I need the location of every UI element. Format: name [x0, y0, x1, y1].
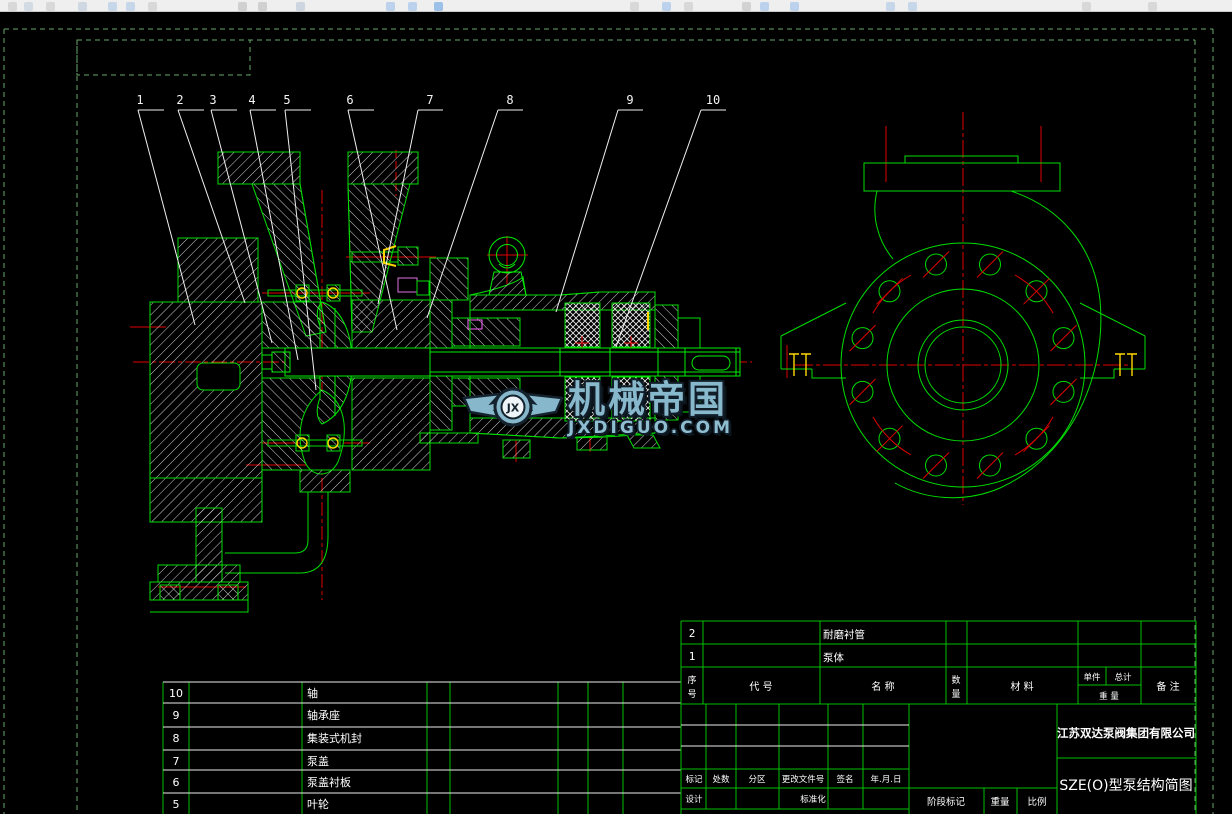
callout-label: 5 [283, 93, 290, 107]
item-name: 泵体 [823, 652, 844, 664]
part-name: 轴 [307, 686, 318, 700]
toolbar-icon[interactable] [742, 2, 751, 11]
parts-list-table: 10 9 8 7 6 5 轴 轴承座 集装式机封 泵盖 泵盖衬板 叶轮 [163, 682, 681, 814]
title-block: 2 耐磨衬管 1 泵体 序 号 代 号 名 称 数 量 材 料 单件 总计 重 … [681, 621, 1196, 814]
rev-col: 处数 [712, 774, 730, 785]
col-header-qty: 数 [951, 674, 960, 686]
part-no: 8 [173, 732, 180, 745]
item-name: 耐磨衬管 [823, 628, 865, 641]
part-no: 9 [173, 709, 180, 722]
toolbar-icon[interactable] [790, 2, 799, 11]
toolbar-icon[interactable] [1148, 2, 1157, 11]
callout-label: 3 [209, 93, 216, 107]
item-no: 2 [689, 627, 696, 640]
pump-end-view [781, 112, 1145, 505]
toolbar-icon[interactable] [24, 2, 33, 11]
part-name: 泵盖 [307, 754, 329, 768]
logo-monogram: JX [506, 402, 520, 415]
stage-mark-label: 阶段标记 [927, 796, 966, 808]
toolbar-icon[interactable] [258, 2, 267, 11]
watermark: JX 机械帝国 JXDIGUO.COM [462, 372, 772, 446]
standardization-label: 标准化 [800, 794, 826, 805]
callout-label: 4 [248, 93, 255, 107]
volute-spiral [895, 191, 1101, 498]
part-name: 泵盖衬板 [307, 775, 351, 789]
item-no: 1 [689, 650, 696, 663]
callout-label: 1 [136, 93, 143, 107]
rev-col: 签名 [836, 774, 853, 785]
col-header-unit: 单件 [1083, 672, 1101, 683]
col-header-qty: 量 [951, 689, 960, 700]
toolbar-icon[interactable] [408, 2, 417, 11]
part-name: 轴承座 [307, 708, 340, 722]
toolbar-icon[interactable] [46, 2, 55, 11]
toolbar-icon[interactable] [108, 2, 117, 11]
part-no: 10 [169, 687, 183, 700]
col-header-weight: 重 量 [1099, 691, 1119, 702]
cad-window: 1 2 3 4 5 6 7 8 9 10 [0, 0, 1232, 814]
toolbar-icon[interactable] [662, 2, 671, 11]
rev-col: 标记 [685, 774, 703, 785]
toolbar-icon[interactable] [78, 2, 87, 11]
toolbar-icon[interactable] [886, 2, 895, 11]
toolbar-icon[interactable] [8, 2, 17, 11]
toolbar-icon[interactable] [434, 2, 443, 11]
watermark-url: JXDIGUO.COM [568, 420, 733, 437]
part-name: 集装式机封 [307, 731, 362, 745]
winged-gear-logo: JX [462, 374, 564, 444]
callout-label: 6 [346, 93, 353, 107]
toolbar-icon[interactable] [386, 2, 395, 11]
toolbar-icon[interactable] [630, 2, 639, 11]
impeller-nut [272, 352, 290, 372]
toolbar-icon[interactable] [908, 2, 917, 11]
rev-col: 更改文件号 [782, 774, 825, 785]
company-name: 江苏双达泵阀集团有限公司 [1057, 726, 1195, 740]
watermark-title: 机械帝国 [568, 381, 733, 418]
weight-label: 重量 [990, 796, 1010, 808]
callout-label: 9 [626, 93, 633, 107]
callout-label: 7 [426, 93, 433, 107]
toolbar-icon[interactable] [760, 2, 769, 11]
callout-label: 8 [506, 93, 513, 107]
callout-label: 2 [176, 93, 183, 107]
col-header-code: 代 号 [749, 681, 772, 693]
discharge-flange [864, 163, 1060, 191]
rev-col: 分区 [748, 775, 766, 785]
design-label: 设计 [685, 794, 703, 805]
support-lug-right [1080, 303, 1145, 378]
part-no: 7 [173, 755, 180, 768]
col-header-remarks: 备 注 [1156, 680, 1179, 693]
toolbar-icon[interactable] [238, 2, 247, 11]
drawing-title: SZE(O)型泵结构简图 [1059, 777, 1192, 794]
toolbar-icon[interactable] [1082, 2, 1091, 11]
col-header-seq: 序 [687, 674, 696, 686]
app-toolbar [0, 0, 1232, 12]
scale-label: 比例 [1027, 796, 1046, 808]
part-name: 叶轮 [307, 797, 329, 811]
col-header-seq: 号 [687, 689, 696, 700]
toolbar-icon[interactable] [684, 2, 693, 11]
toolbar-icon[interactable] [126, 2, 135, 11]
callout-label: 10 [706, 93, 720, 107]
support-lug-left [781, 303, 846, 378]
part-no: 5 [173, 798, 180, 811]
toolbar-icon[interactable] [148, 2, 157, 11]
volute-casing [150, 238, 262, 522]
part-no: 6 [173, 776, 180, 789]
col-header-total: 总计 [1114, 672, 1132, 683]
col-header-material: 材 料 [1010, 680, 1033, 693]
col-header-name: 名 称 [871, 680, 894, 693]
toolbar-icon[interactable] [296, 2, 305, 11]
rev-col: 年.月.日 [871, 774, 902, 785]
